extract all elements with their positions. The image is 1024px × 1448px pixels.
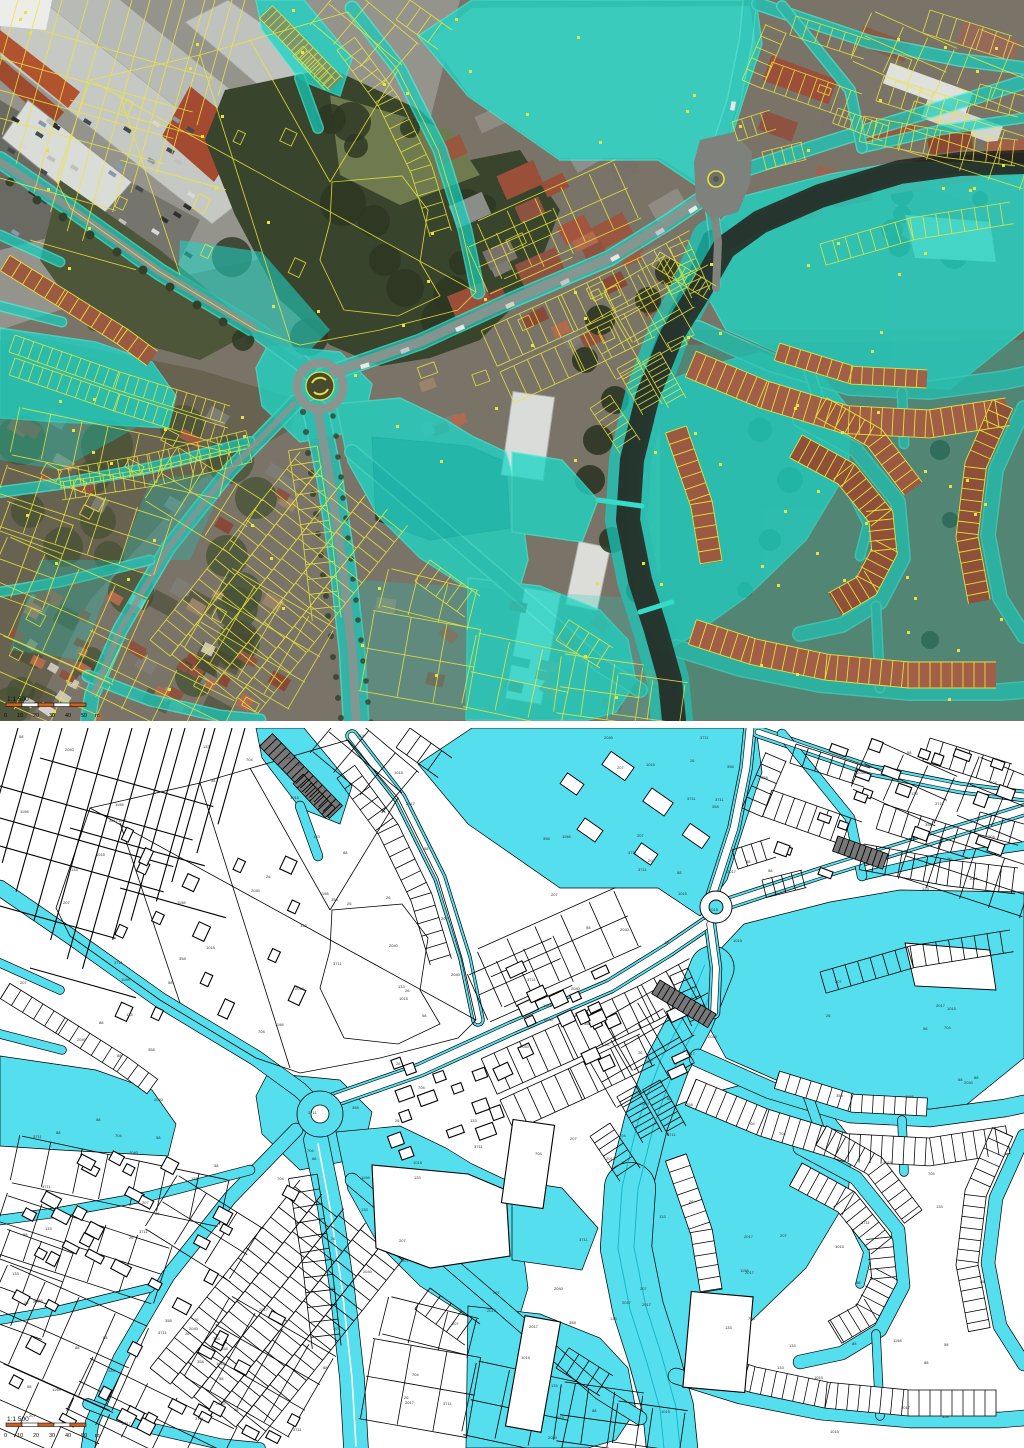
svg-text:3711: 3711 [114, 960, 123, 965]
svg-text:2017: 2017 [406, 801, 416, 806]
svg-text:58: 58 [768, 868, 773, 873]
svg-text:2017: 2017 [686, 1051, 696, 1056]
svg-text:2040: 2040 [65, 747, 75, 752]
svg-text:133: 133 [936, 1204, 943, 1209]
svg-text:704: 704 [412, 1372, 419, 1377]
svg-text:88: 88 [312, 1156, 317, 1161]
svg-text:2017: 2017 [744, 1234, 754, 1239]
svg-text:26: 26 [155, 1211, 160, 1216]
svg-text:2040: 2040 [189, 1326, 199, 1331]
svg-text:26: 26 [24, 1300, 29, 1305]
svg-text:1198: 1198 [118, 818, 127, 823]
svg-text:26: 26 [689, 1199, 694, 1204]
svg-text:0: 0 [4, 1433, 7, 1439]
svg-text:26: 26 [185, 1331, 190, 1336]
svg-text:2040: 2040 [964, 1080, 974, 1085]
svg-text:1015: 1015 [555, 1415, 565, 1420]
svg-text:26: 26 [194, 1317, 199, 1322]
svg-text:m: m [95, 1433, 100, 1439]
svg-text:26: 26 [396, 1061, 401, 1066]
svg-text:20: 20 [33, 1433, 39, 1439]
svg-text:133: 133 [911, 791, 918, 796]
svg-text:704: 704 [277, 1176, 284, 1181]
svg-text:3711: 3711 [195, 1416, 204, 1421]
svg-text:1:1 500: 1:1 500 [7, 1416, 29, 1423]
svg-text:1015: 1015 [830, 1429, 840, 1434]
svg-text:133: 133 [203, 744, 210, 749]
svg-text:40: 40 [65, 713, 71, 719]
svg-text:704: 704 [284, 755, 291, 760]
svg-text:2017: 2017 [529, 1324, 539, 1329]
svg-text:1015: 1015 [413, 1160, 423, 1165]
svg-text:207: 207 [20, 980, 27, 985]
svg-text:88: 88 [96, 1117, 101, 1122]
svg-text:26: 26 [129, 1235, 134, 1240]
svg-text:88: 88 [856, 1280, 861, 1285]
svg-text:704: 704 [928, 1171, 935, 1176]
svg-text:2017: 2017 [727, 869, 737, 874]
svg-text:26: 26 [331, 1236, 336, 1241]
svg-text:3711: 3711 [42, 1184, 51, 1189]
svg-text:2017: 2017 [936, 1003, 946, 1008]
svg-text:358: 358 [165, 1318, 172, 1323]
svg-text:1015: 1015 [543, 1003, 553, 1008]
svg-text:26: 26 [347, 901, 352, 906]
svg-text:26: 26 [826, 1013, 831, 1018]
svg-text:358: 358 [179, 956, 186, 961]
svg-text:133: 133 [12, 1271, 19, 1276]
svg-text:20: 20 [33, 713, 39, 719]
svg-text:58: 58 [422, 1013, 427, 1018]
svg-text:358: 358 [925, 822, 932, 827]
svg-text:1198: 1198 [893, 1338, 902, 1343]
svg-text:50: 50 [81, 713, 87, 719]
svg-text:2040: 2040 [520, 1044, 530, 1049]
svg-text:58: 58 [27, 1384, 32, 1389]
svg-text:3711: 3711 [715, 797, 724, 802]
svg-text:133: 133 [313, 834, 320, 839]
svg-text:207: 207 [399, 1238, 406, 1243]
svg-text:133: 133 [922, 886, 929, 891]
svg-text:58: 58 [214, 1163, 219, 1168]
svg-text:10: 10 [17, 1433, 23, 1439]
svg-text:58: 58 [211, 778, 216, 783]
svg-text:1015: 1015 [394, 770, 404, 775]
svg-text:704: 704 [748, 1316, 755, 1321]
svg-text:2040: 2040 [548, 1435, 558, 1440]
svg-text:58: 58 [219, 1376, 224, 1381]
svg-text:2040: 2040 [389, 943, 399, 948]
svg-text:133: 133 [551, 1383, 558, 1388]
svg-text:26: 26 [947, 856, 952, 861]
svg-text:207: 207 [33, 1299, 40, 1304]
svg-text:358: 358 [221, 1346, 228, 1351]
svg-text:207: 207 [646, 1059, 653, 1064]
svg-text:207: 207 [142, 1200, 149, 1205]
svg-text:88: 88 [103, 1335, 108, 1340]
svg-text:207: 207 [441, 916, 448, 921]
svg-text:88: 88 [75, 1345, 80, 1350]
svg-text:3711: 3711 [638, 867, 647, 872]
svg-text:133: 133 [300, 923, 307, 928]
svg-text:358: 358 [569, 1320, 576, 1325]
svg-text:3711: 3711 [700, 735, 709, 740]
svg-text:1015: 1015 [733, 938, 743, 943]
svg-text:2040: 2040 [620, 927, 630, 932]
svg-text:58: 58 [923, 1026, 928, 1031]
svg-text:2040: 2040 [544, 1017, 554, 1022]
svg-text:133: 133 [71, 867, 78, 872]
svg-text:358: 358 [686, 1102, 693, 1107]
svg-text:88: 88 [852, 1341, 857, 1346]
svg-text:133: 133 [108, 1368, 115, 1373]
svg-text:26: 26 [690, 758, 695, 763]
svg-text:207: 207 [551, 892, 558, 897]
svg-text:3711: 3711 [308, 1110, 317, 1115]
svg-text:704: 704 [944, 1025, 951, 1030]
svg-text:26: 26 [395, 1118, 400, 1123]
svg-text:704: 704 [418, 1085, 425, 1090]
svg-text:207: 207 [333, 1326, 340, 1331]
svg-text:358: 358 [942, 1414, 949, 1419]
svg-text:26: 26 [266, 874, 271, 879]
svg-text:2017: 2017 [622, 1300, 632, 1305]
svg-text:1198: 1198 [275, 1022, 284, 1027]
svg-text:207: 207 [780, 1233, 787, 1238]
svg-text:207: 207 [570, 1136, 577, 1141]
svg-text:3711: 3711 [628, 850, 637, 855]
svg-text:1015: 1015 [521, 1355, 531, 1360]
svg-text:3711: 3711 [333, 961, 342, 966]
svg-text:1:1 500: 1:1 500 [7, 696, 29, 703]
svg-text:58: 58 [168, 980, 173, 985]
svg-text:1015: 1015 [947, 1006, 957, 1011]
svg-text:26: 26 [404, 1395, 409, 1400]
svg-text:358: 358 [584, 1021, 591, 1026]
svg-text:1198: 1198 [320, 891, 329, 896]
svg-text:1015: 1015 [835, 1244, 845, 1249]
svg-text:207: 207 [835, 979, 842, 984]
svg-text:58: 58 [944, 1342, 949, 1347]
svg-text:3711: 3711 [474, 1144, 483, 1149]
svg-text:58: 58 [234, 1407, 239, 1412]
svg-text:2017: 2017 [745, 1270, 755, 1275]
svg-text:358: 358 [712, 804, 719, 809]
svg-text:704: 704 [635, 1090, 642, 1095]
svg-text:133: 133 [295, 762, 302, 767]
svg-text:40: 40 [65, 1433, 71, 1439]
svg-text:58: 58 [907, 750, 912, 755]
svg-text:88: 88 [958, 1077, 963, 1082]
svg-text:2017: 2017 [295, 986, 305, 991]
svg-text:88: 88 [667, 1096, 672, 1101]
svg-text:1015: 1015 [969, 876, 979, 881]
svg-text:2017: 2017 [642, 1302, 652, 1307]
svg-text:207: 207 [648, 858, 655, 863]
svg-text:1015: 1015 [646, 762, 656, 767]
svg-text:207: 207 [402, 1258, 409, 1263]
svg-text:1015: 1015 [709, 907, 719, 912]
svg-text:3711: 3711 [33, 1134, 42, 1139]
svg-text:207: 207 [452, 1321, 459, 1326]
svg-text:2040: 2040 [708, 1034, 718, 1039]
svg-text:704: 704 [535, 1151, 542, 1156]
svg-text:26: 26 [638, 1050, 643, 1055]
svg-text:50: 50 [81, 1433, 87, 1439]
svg-text:3711: 3711 [293, 1427, 302, 1432]
svg-text:26: 26 [665, 940, 670, 945]
svg-text:207: 207 [63, 900, 70, 905]
svg-text:3711: 3711 [935, 801, 944, 806]
svg-text:704: 704 [990, 780, 997, 785]
svg-text:3711: 3711 [861, 1220, 870, 1225]
svg-text:704: 704 [258, 1029, 265, 1034]
svg-text:26: 26 [405, 988, 410, 993]
svg-text:2040: 2040 [363, 1269, 373, 1274]
svg-text:88: 88 [99, 1020, 104, 1025]
svg-text:58: 58 [19, 734, 24, 739]
svg-text:58: 58 [23, 1232, 28, 1237]
svg-text:1198: 1198 [177, 900, 186, 905]
svg-text:30: 30 [49, 713, 55, 719]
svg-text:1198: 1198 [121, 977, 130, 982]
svg-text:358: 358 [727, 764, 734, 769]
svg-text:133: 133 [659, 1214, 666, 1219]
svg-text:1015: 1015 [883, 1160, 893, 1165]
svg-text:1198: 1198 [905, 1094, 914, 1099]
svg-text:2040: 2040 [216, 1401, 226, 1406]
svg-text:2040: 2040 [571, 986, 581, 991]
svg-text:704: 704 [358, 733, 365, 738]
svg-text:88: 88 [974, 1075, 979, 1080]
svg-text:133: 133 [126, 1012, 133, 1017]
svg-text:358: 358 [352, 1105, 359, 1110]
svg-text:1198: 1198 [115, 802, 124, 807]
svg-text:2040: 2040 [857, 770, 867, 775]
svg-text:358: 358 [543, 836, 550, 841]
svg-text:26: 26 [605, 1042, 610, 1047]
svg-text:3711: 3711 [443, 1401, 452, 1406]
svg-text:704: 704 [779, 1131, 786, 1136]
svg-text:704: 704 [246, 757, 253, 762]
svg-text:133: 133 [45, 1226, 52, 1231]
svg-text:2040: 2040 [604, 735, 614, 740]
svg-text:3711: 3711 [687, 796, 696, 801]
svg-text:1198: 1198 [562, 834, 571, 839]
svg-text:1015: 1015 [814, 1375, 824, 1380]
svg-text:207: 207 [29, 1413, 36, 1418]
svg-text:58: 58 [424, 846, 429, 851]
svg-text:207: 207 [637, 833, 644, 838]
svg-text:58: 58 [156, 1135, 161, 1140]
svg-text:88: 88 [117, 1053, 122, 1058]
svg-text:704: 704 [213, 1336, 220, 1341]
svg-text:133: 133 [191, 1176, 198, 1181]
svg-text:2017: 2017 [487, 1308, 497, 1313]
svg-text:704: 704 [307, 1148, 314, 1153]
svg-text:1198: 1198 [361, 1175, 370, 1180]
svg-text:88: 88 [331, 1286, 336, 1291]
svg-text:3711: 3711 [527, 977, 536, 982]
svg-text:2017: 2017 [901, 1405, 911, 1410]
svg-text:88: 88 [323, 1365, 328, 1370]
svg-text:10: 10 [17, 713, 23, 719]
svg-text:26: 26 [386, 895, 391, 900]
svg-text:2017: 2017 [109, 818, 119, 823]
svg-text:133: 133 [414, 1175, 421, 1180]
svg-text:88: 88 [592, 1408, 597, 1413]
svg-text:133: 133 [361, 1207, 368, 1212]
svg-text:1015: 1015 [399, 996, 409, 1001]
svg-text:358: 358 [148, 1047, 155, 1052]
svg-text:133: 133 [610, 1316, 617, 1321]
svg-text:88: 88 [56, 1130, 61, 1135]
svg-text:133: 133 [789, 1343, 796, 1348]
svg-text:704: 704 [115, 1133, 122, 1138]
svg-text:2040: 2040 [129, 1150, 139, 1155]
svg-text:2040: 2040 [554, 1286, 564, 1291]
svg-text:1015: 1015 [290, 795, 300, 800]
svg-text:58: 58 [586, 925, 591, 930]
svg-text:2040: 2040 [77, 1037, 87, 1042]
svg-text:2017: 2017 [259, 1307, 269, 1312]
svg-text:207: 207 [617, 765, 624, 770]
svg-text:2017: 2017 [122, 1421, 132, 1426]
svg-text:207: 207 [640, 1286, 647, 1291]
svg-text:2040: 2040 [451, 972, 461, 977]
svg-text:704: 704 [988, 834, 995, 839]
svg-text:1198: 1198 [52, 1387, 61, 1392]
svg-text:133: 133 [777, 1365, 784, 1370]
svg-text:1198: 1198 [20, 809, 29, 814]
svg-text:88: 88 [343, 850, 348, 855]
svg-text:2017: 2017 [606, 1156, 616, 1161]
svg-text:1015: 1015 [216, 1361, 226, 1366]
svg-text:88: 88 [677, 870, 682, 875]
svg-text:m: m [95, 713, 100, 719]
svg-text:1015: 1015 [96, 852, 106, 857]
svg-text:133: 133 [725, 1325, 732, 1330]
svg-text:358: 358 [197, 1359, 204, 1364]
svg-text:3711: 3711 [158, 1330, 167, 1335]
svg-text:2040: 2040 [154, 1097, 164, 1102]
svg-text:1015: 1015 [206, 945, 216, 950]
svg-text:358: 358 [836, 1093, 843, 1098]
svg-text:2017: 2017 [405, 1400, 415, 1405]
svg-text:358: 358 [761, 775, 768, 780]
svg-text:0: 0 [4, 713, 7, 719]
svg-text:88: 88 [924, 1360, 929, 1365]
svg-text:704: 704 [748, 1121, 755, 1126]
svg-text:3711: 3711 [139, 1229, 148, 1234]
svg-text:3711: 3711 [667, 1132, 676, 1137]
svg-text:88: 88 [980, 1279, 985, 1284]
svg-text:133: 133 [470, 1118, 477, 1123]
svg-text:1015: 1015 [678, 891, 688, 896]
svg-text:88: 88 [746, 859, 751, 864]
svg-text:2040: 2040 [251, 888, 261, 893]
svg-text:2040: 2040 [640, 1101, 650, 1106]
svg-text:358: 358 [331, 897, 338, 902]
svg-text:3711: 3711 [579, 1237, 588, 1242]
svg-text:207: 207 [493, 1290, 500, 1295]
svg-text:1015: 1015 [661, 1409, 671, 1414]
svg-text:30: 30 [49, 1433, 55, 1439]
svg-text:704: 704 [619, 1133, 626, 1138]
